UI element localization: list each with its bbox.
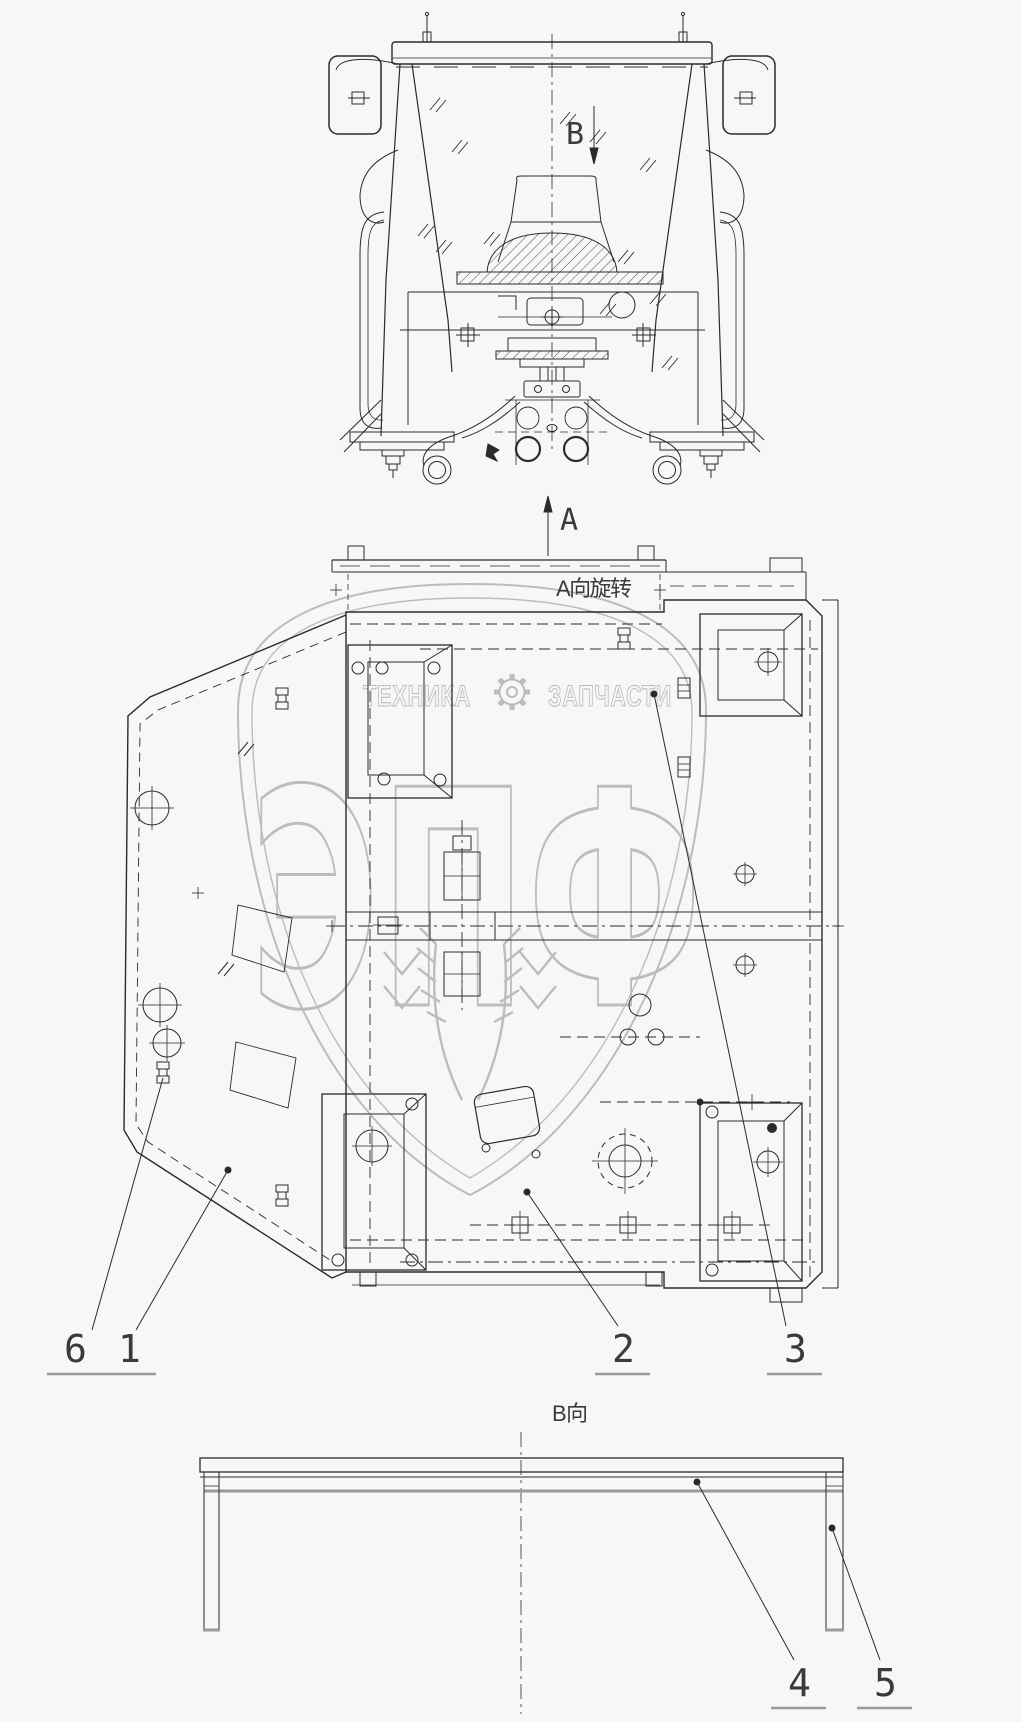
callout-6: 6	[47, 1078, 163, 1374]
pipe-detail	[473, 1085, 541, 1158]
left-mirror	[329, 56, 398, 223]
antenna-left	[423, 12, 431, 42]
clamp-mark	[486, 444, 499, 461]
right-outer-strip	[770, 600, 838, 1302]
engine-cover-hatched	[408, 233, 698, 425]
section-arrow-a: A	[544, 496, 578, 556]
dashboard	[456, 292, 656, 347]
corner-bracket-top-right	[700, 614, 802, 716]
plan-view-title: A向旋转	[556, 576, 632, 601]
base-plate-right	[650, 400, 764, 478]
right-leg	[825, 1472, 844, 1630]
engineering-drawing: B A ТЕХНИКА ЗАПЧАСТИ ЭПФ	[0, 0, 1021, 1722]
front-view: B A	[329, 12, 775, 556]
leader-line	[527, 1192, 618, 1326]
bottom-view-title: B向	[552, 1401, 588, 1426]
base-plate-left	[340, 400, 454, 478]
right-handrail	[720, 212, 744, 428]
callout-number: 1	[118, 1327, 141, 1371]
leader-line	[136, 1170, 228, 1330]
drawing-sheet: B A ТЕХНИКА ЗАПЧАСТИ ЭПФ	[0, 0, 1021, 1722]
table-top-plate	[200, 1458, 843, 1491]
section-arrow-b: B	[566, 106, 598, 164]
leader-line	[832, 1528, 880, 1660]
arrow-down-icon	[590, 148, 598, 164]
leader-dot	[651, 691, 657, 697]
watermark-brand-left: ТЕХНИКА	[363, 680, 471, 713]
corner-bracket-bottom-right	[700, 1103, 802, 1281]
gear-icon	[494, 674, 530, 710]
callout-number: 2	[612, 1327, 635, 1371]
leader-dot	[225, 1167, 231, 1173]
leader-line	[92, 1078, 163, 1330]
corner-bracket-bottom-left	[322, 1094, 426, 1270]
right-mirror	[706, 56, 775, 223]
callout-4: 4	[694, 1479, 826, 1708]
leader-line	[697, 1482, 794, 1660]
callout-1: 1	[101, 1167, 231, 1374]
section-label-a: A	[560, 503, 578, 538]
callout-number: 4	[788, 1661, 811, 1705]
bottom-edge-tabs	[352, 1272, 662, 1286]
bottom-view: B向 4 5	[200, 1401, 912, 1714]
callout-number: 3	[784, 1327, 807, 1371]
watermark-logo: ЭПФ	[250, 727, 702, 1076]
leader-dot	[694, 1479, 700, 1485]
leader-dot	[524, 1189, 530, 1195]
antenna-right	[679, 12, 687, 42]
left-handrail	[360, 212, 384, 428]
leader-dot	[829, 1525, 835, 1531]
watermark: ТЕХНИКА ЗАПЧАСТИ ЭПФ	[238, 584, 706, 1195]
left-leg	[203, 1472, 220, 1630]
steering-assembly	[495, 338, 610, 465]
arrow-up-icon	[544, 496, 552, 512]
callout-number: 5	[874, 1661, 897, 1705]
section-label-b: B	[566, 117, 584, 152]
callout-5: 5	[829, 1525, 912, 1708]
callout-number: 6	[64, 1327, 87, 1371]
